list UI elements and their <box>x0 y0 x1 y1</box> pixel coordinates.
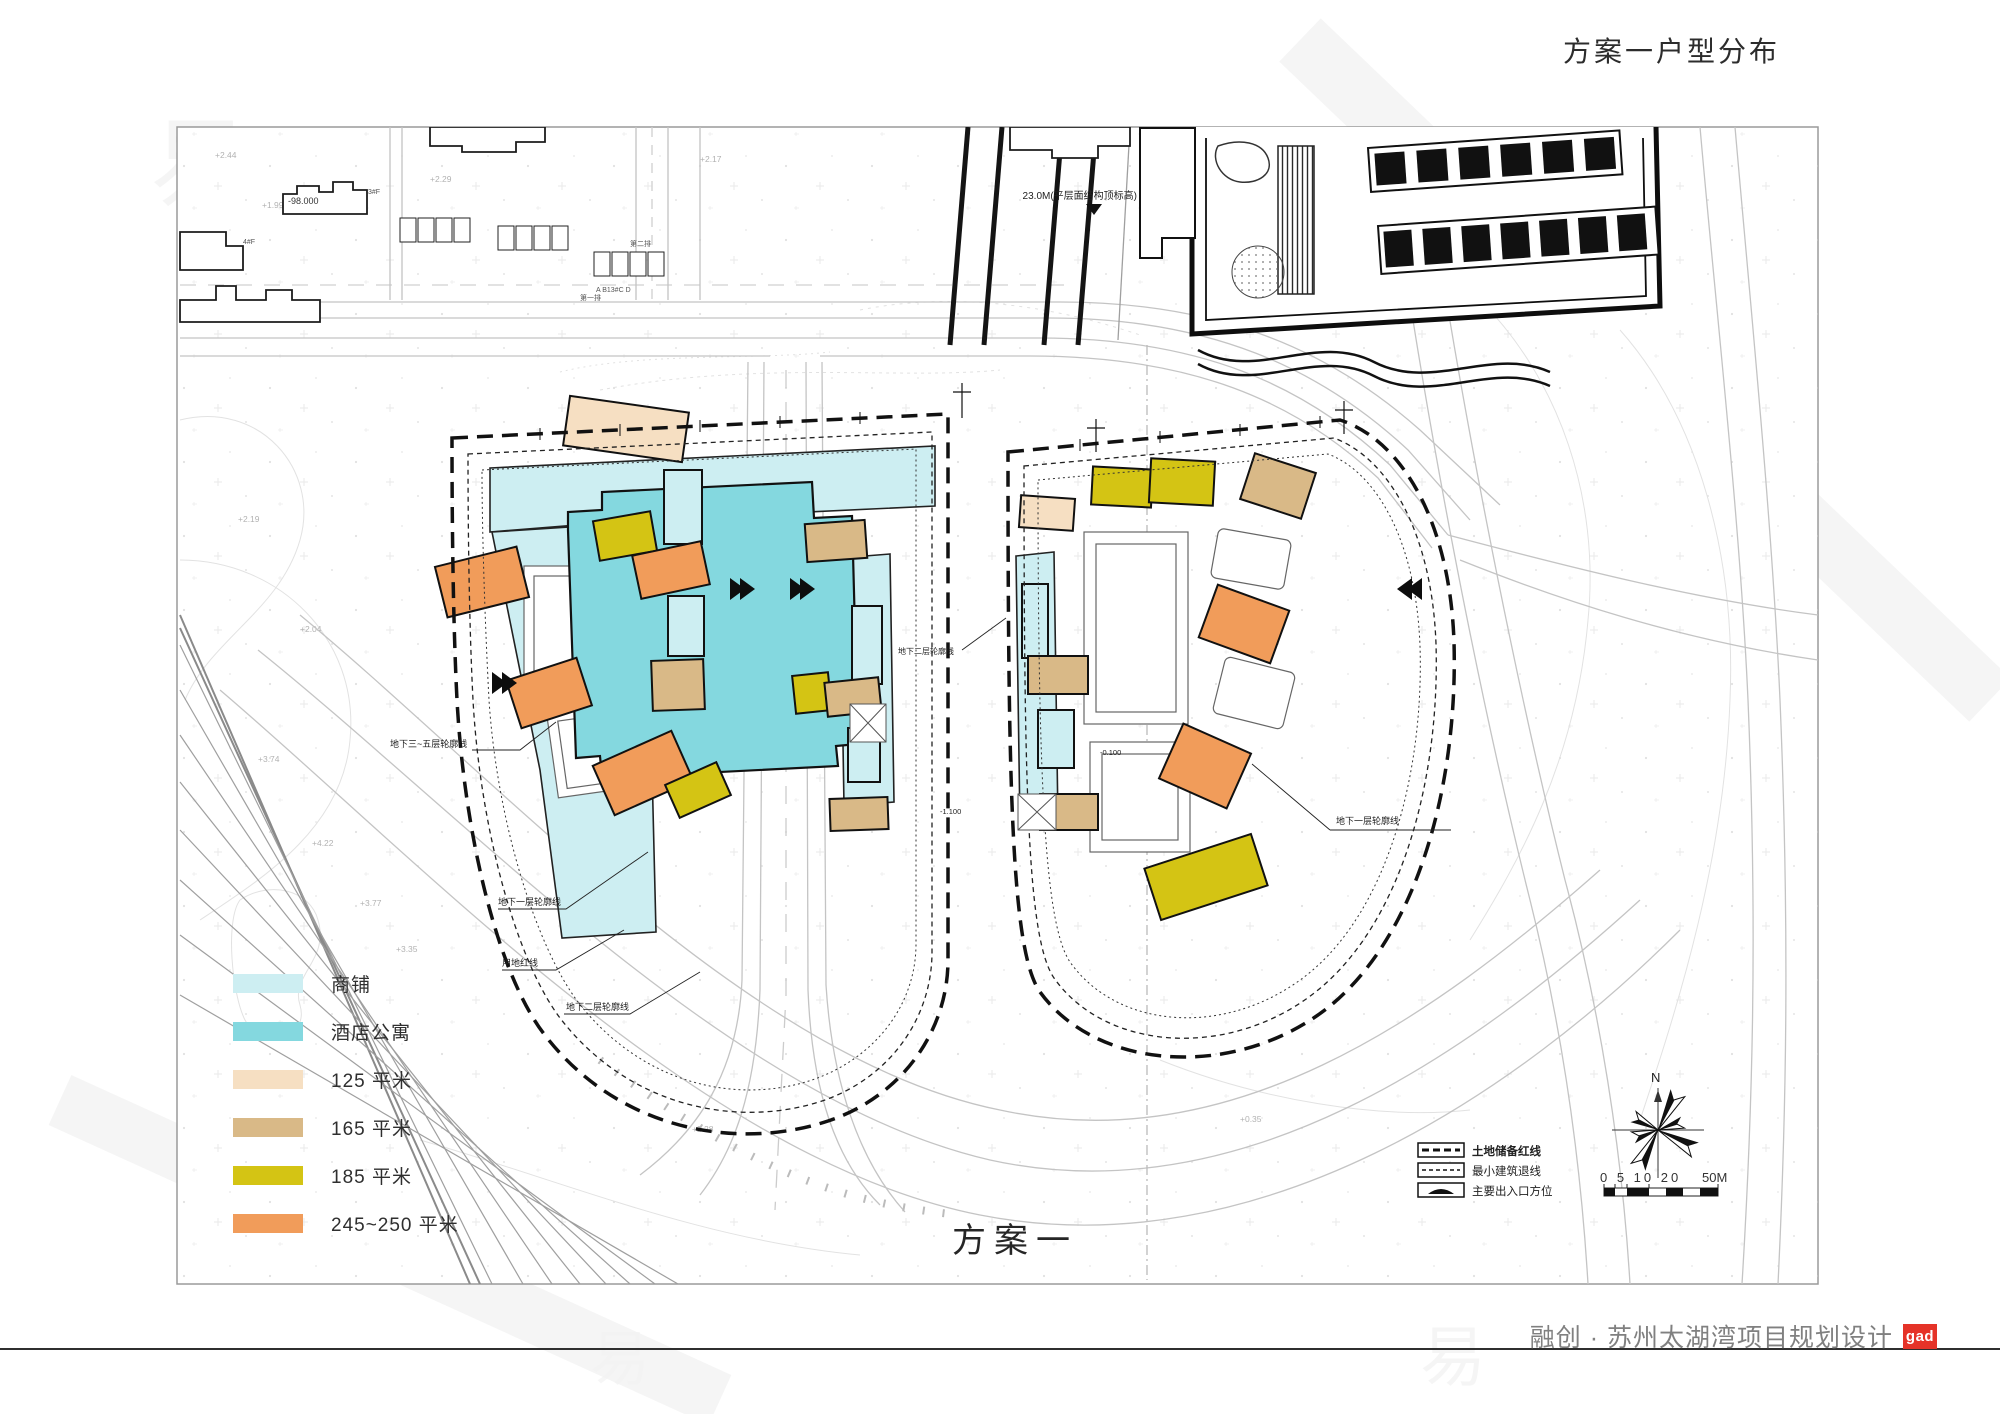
spot-elevation: +2.04 <box>300 624 322 634</box>
legend-label: 酒店公寓 <box>331 1018 411 1045</box>
building-shop <box>1022 584 1048 658</box>
spot-elevation: +3.35 <box>396 944 418 954</box>
level-label: -1.100 <box>940 807 961 816</box>
legend-label: 125 平米 <box>331 1066 412 1093</box>
page: 易 易 易 易 易 易 易 易 易 易 <box>0 0 2000 1414</box>
building-floor-label: 3#F <box>368 189 380 196</box>
spot-elevation: +3.74 <box>258 754 280 764</box>
annotation-b2-outline: 地下二层轮廓线 <box>566 1001 629 1012</box>
building-165 <box>1028 656 1088 694</box>
spot-elevation: +1.99 <box>262 200 284 210</box>
scale-end-label: 50M <box>1702 1170 1727 1185</box>
scale-bar: 0 5 10 20 50M <box>1600 1170 1727 1196</box>
spot-elevation: +3.77 <box>360 898 382 908</box>
legend-item: 245~250 平米 <box>233 1214 459 1233</box>
legend-item: 125 平米 <box>233 1070 459 1089</box>
spot-elevation: +2.17 <box>700 154 722 164</box>
planted-circle <box>1232 246 1284 298</box>
existing-tall-building <box>1140 128 1195 258</box>
line-type-legend: 土地储备红线 最小建筑退线 主要出入口方位 <box>1418 1143 1553 1198</box>
spot-elevation: +2.44 <box>215 150 237 160</box>
annotation-b3-5-outline: 地下三~五层轮廓线 <box>390 738 467 749</box>
building-shop <box>1038 710 1074 768</box>
legend-label: 245~250 平米 <box>331 1210 459 1237</box>
page-title: 方案一户型分布 <box>1563 30 1780 70</box>
legend-label: 165 平米 <box>331 1114 412 1141</box>
building-elevation-label: -98.000 <box>288 196 319 206</box>
unit-type-legend: 商铺 酒店公寓 125 平米 165 平米 185 平米 245~250 平米 <box>233 974 459 1233</box>
building-185 <box>1149 458 1215 505</box>
line-legend-label: 土地储备红线 <box>1472 1144 1541 1158</box>
spot-elevation: +2.29 <box>430 174 452 184</box>
annotation-b1-outline: 地下一层轮廓线 <box>498 896 561 907</box>
legend-swatch-185 <box>233 1166 303 1185</box>
building-165 <box>829 797 888 831</box>
legend-item: 165 平米 <box>233 1118 459 1137</box>
gad-logo: gad <box>1903 1324 1937 1349</box>
building-165 <box>805 520 868 562</box>
line-legend-label: 主要出入口方位 <box>1472 1184 1553 1198</box>
spot-elevation: +0.35 <box>1240 1114 1262 1124</box>
legend-item: 商铺 <box>233 974 459 993</box>
building-outline <box>1084 532 1188 724</box>
legend-swatch-245 <box>233 1214 303 1233</box>
line-legend-label: 最小建筑退线 <box>1472 1164 1541 1178</box>
legend-swatch-shop <box>233 974 303 993</box>
row-label: 第二排 <box>630 239 651 248</box>
legend-swatch-hotel <box>233 1022 303 1041</box>
svg-text:易: 易 <box>1420 1320 1486 1394</box>
building-shop <box>668 596 704 656</box>
spot-elevation: +4.22 <box>312 838 334 848</box>
building-185 <box>1091 466 1153 507</box>
legend-item: 酒店公寓 <box>233 1022 459 1041</box>
unit-letters-label: A B13#C D <box>596 287 631 294</box>
scale-ticks-label: 0 5 10 20 <box>1600 1170 1681 1185</box>
legend-swatch-165 <box>233 1118 303 1137</box>
footer: 融创 · 苏州太湖湾项目规划设计 gad <box>1530 1318 1937 1354</box>
annotation-red-line: 用地红线 <box>502 957 538 968</box>
building-shop <box>664 470 702 544</box>
annotation-b2-outline: 地下二层轮廓线 <box>898 646 954 656</box>
roof-height-note: 23.0M(平层面结构顶标高) <box>1023 189 1137 202</box>
building-floor-label: 4#F <box>243 239 255 246</box>
legend-item: 185 平米 <box>233 1166 459 1185</box>
compass-north-label: N <box>1651 1070 1660 1085</box>
legend-label: 商铺 <box>331 970 371 997</box>
annotation-b1-outline: 地下一层轮廓线 <box>1336 815 1399 826</box>
project-title: 融创 · 苏州太湖湾项目规划设计 <box>1530 1318 1893 1354</box>
level-label: -0.100 <box>1100 748 1121 757</box>
row-label: 第一排 <box>580 293 601 302</box>
plan-name-label: 方案一 <box>952 1222 1078 1260</box>
legend-label: 185 平米 <box>331 1162 412 1189</box>
building-125 <box>1019 495 1075 531</box>
building-shop <box>852 606 882 684</box>
legend-swatch-125 <box>233 1070 303 1089</box>
building-165 <box>651 659 705 711</box>
spot-elevation: +2.19 <box>238 514 260 524</box>
